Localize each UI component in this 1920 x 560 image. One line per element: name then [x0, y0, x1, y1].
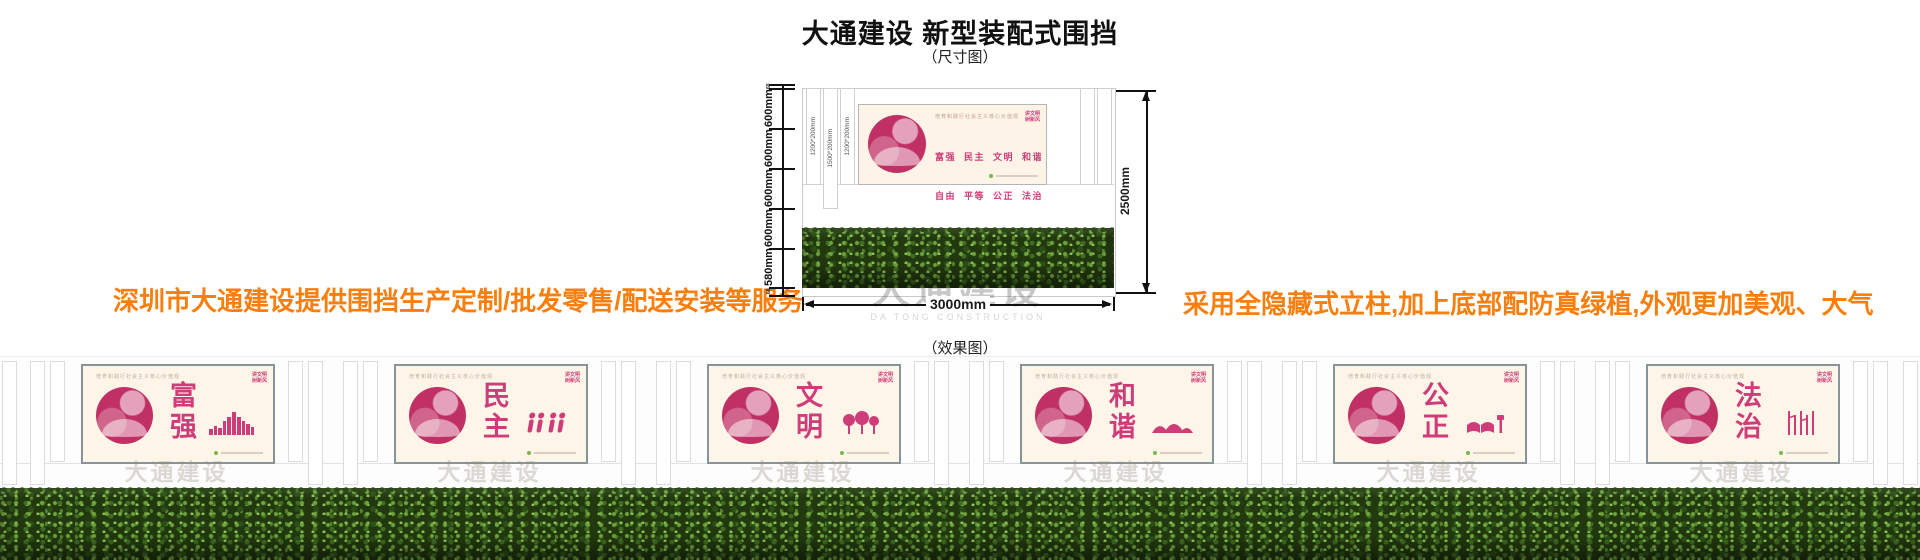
green-dot-icon — [1779, 451, 1783, 455]
poster-header: 培育和践行社会主义核心价值观 — [722, 373, 806, 380]
poster-badge: 讲文明 树新风 — [1504, 372, 1519, 384]
fence-unit: 培育和践行社会主义核心价值观 讲文明 树新风 法治 大通建设 D — [1585, 357, 1898, 489]
green-dot-icon — [989, 174, 993, 178]
footer-line — [1160, 452, 1202, 454]
fence-post — [1853, 361, 1868, 462]
fence-post — [676, 361, 691, 462]
arrow-right-icon — [1102, 300, 1112, 308]
fence-unit: 培育和践行社会主义核心价值观 讲文明 树新风 和谐 大通建设 D — [959, 357, 1272, 489]
poster-badge: 讲文明 树新风 — [565, 372, 580, 384]
fence-unit: 培育和践行社会主义核心价值观 讲文明 树新风 富强 大通建设 D — [20, 357, 333, 489]
feature-tagline: 采用全隐藏式立柱,加上底部配防真绿植,外观更加美观、大气 — [1183, 284, 1873, 321]
papercut-circle-graphic — [1661, 387, 1718, 444]
value-poster: 培育和践行社会主义核心价值观 讲文明 树新风 富强 — [81, 364, 275, 464]
value-word: 法治 — [1732, 381, 1759, 443]
poster-header: 培育和践行社会主义核心价值观 — [96, 373, 180, 380]
fence-post — [1903, 361, 1918, 485]
post-slat: 1500*200mm — [823, 88, 838, 209]
dim-label: 600mm — [758, 208, 780, 248]
fence-post — [1302, 361, 1317, 462]
effect-diagram-label: （效果图） — [0, 337, 1920, 358]
poster-header: 培育和践行社会主义核心价值观 — [935, 113, 1019, 120]
poster-footer-mark — [527, 451, 576, 455]
slat-size-label: 1500*200mm — [827, 129, 834, 168]
dim-label: 600mm — [758, 168, 780, 208]
skyline-icon — [209, 409, 255, 440]
poster-footer-mark — [1153, 451, 1202, 455]
fence-post — [601, 361, 616, 462]
post-slat: 1200*200mm — [840, 88, 855, 185]
trees-icon — [841, 410, 881, 440]
fence-post — [1540, 361, 1555, 462]
dim-label: 600mm — [758, 88, 780, 128]
badge-line: 树新风 — [1025, 117, 1040, 123]
fence-post — [914, 361, 929, 462]
dim-label: 3000mm — [926, 296, 990, 312]
dim-tick — [1116, 90, 1156, 92]
fence-rendering: 培育和践行社会主义核心价值观 讲文明 树新风 富强 大通建设 D — [0, 356, 1920, 489]
value-word: 民主 — [480, 381, 507, 443]
poster-footer-mark — [214, 451, 263, 455]
watermark-en: DA TONG CONSTRUCTION — [818, 313, 1098, 322]
watermark-cn: 大通建设 — [1585, 461, 1898, 484]
poster-header: 培育和践行社会主义核心价值观 — [1348, 373, 1432, 380]
poster-header: 培育和践行社会主义核心价值观 — [1035, 373, 1119, 380]
fence-post — [1227, 361, 1242, 462]
watermark-cn: 大通建设 — [959, 461, 1272, 484]
footer-line — [534, 452, 576, 454]
poster-badge: 讲文明 树新风 — [878, 372, 893, 384]
mountains-icon — [1150, 415, 1194, 440]
book-gavel-icon — [1465, 411, 1507, 440]
dim-tick — [1116, 292, 1156, 294]
hedge-strip — [0, 488, 1920, 560]
badge-line: 树新风 — [878, 378, 893, 384]
papercut-circle-graphic — [1348, 387, 1405, 444]
papercut-circle-graphic — [1035, 387, 1092, 444]
footer-line — [221, 452, 263, 454]
footer-line — [996, 175, 1038, 177]
plants-icon — [1784, 409, 1820, 440]
dim-label: 580mm — [758, 248, 780, 287]
green-dot-icon — [1466, 451, 1470, 455]
dim-chain-line — [782, 84, 784, 295]
poster-badge: 讲文明 树新风 — [252, 372, 267, 384]
badge-line: 树新风 — [1817, 378, 1832, 384]
size-diagram: 大通建设 DA TONG CONSTRUCTION 60 600mm 600mm… — [758, 76, 1188, 336]
watermark-cn: 大通建设 — [333, 461, 646, 484]
value-poster: 培育和践行社会主义核心价值观 讲文明 树新风 公正 — [1333, 364, 1527, 464]
value-poster: 培育和践行社会主义核心价值观 讲文明 树新风 民主 — [394, 364, 588, 464]
poster-footer-mark — [1779, 451, 1828, 455]
arrow-left-icon — [804, 300, 814, 308]
value-word: 和谐 — [1106, 381, 1133, 443]
badge-line: 树新风 — [252, 378, 267, 384]
core-values-poster: 培育和践行社会主义核心价值观 讲文明 树新风 富强 民主 文明 和谐 自由 平等… — [858, 104, 1047, 185]
green-dot-icon — [840, 451, 844, 455]
post-slat — [1080, 88, 1095, 185]
fence-unit: 培育和践行社会主义核心价值观 讲文明 树新风 文明 大通建设 D — [646, 357, 959, 489]
arrow-up-icon — [1142, 91, 1150, 101]
core-values-row: 自由 平等 公正 法治 — [935, 190, 1043, 203]
poster-footer-mark — [840, 451, 889, 455]
fence-post — [50, 361, 65, 462]
slat-size-label: 1200*200mm — [844, 117, 851, 156]
core-values-row: 富强 民主 文明 和谐 — [935, 151, 1043, 164]
badge-line: 树新风 — [565, 378, 580, 384]
arrow-down-icon — [1142, 283, 1150, 293]
watermark-cn: 大通建设 — [20, 461, 333, 484]
papercut-circle-graphic — [868, 115, 926, 173]
footer-line — [1786, 452, 1828, 454]
papercut-circle-graphic — [409, 387, 466, 444]
poster-header: 培育和践行社会主义核心价值观 — [409, 373, 493, 380]
poster-footer-mark — [989, 174, 1038, 178]
dim-tick — [769, 295, 795, 297]
people-icon — [526, 411, 568, 440]
value-poster: 培育和践行社会主义核心价值观 讲文明 树新风 文明 — [707, 364, 901, 464]
dim-label: 2500mm — [1114, 138, 1136, 244]
footer-line — [1473, 452, 1515, 454]
fence-post — [363, 361, 378, 462]
hedge-strip — [802, 228, 1114, 288]
poster-badge: 讲文明 树新风 — [1817, 372, 1832, 384]
dim-label: 600mm — [758, 128, 780, 168]
papercut-circle-graphic — [722, 387, 779, 444]
value-poster: 培育和践行社会主义核心价值观 讲文明 树新风 法治 — [1646, 364, 1840, 464]
poster-badge: 讲文明 树新风 — [1025, 111, 1040, 123]
slat-size-label: 1200*200mm — [810, 117, 817, 156]
value-poster: 培育和践行社会主义核心价值观 讲文明 树新风 和谐 — [1020, 364, 1214, 464]
value-word: 文明 — [793, 381, 820, 443]
fence-post — [1615, 361, 1630, 462]
fence-post — [288, 361, 303, 462]
fence-unit: 培育和践行社会主义核心价值观 讲文明 树新风 民主 大通建设 D — [333, 357, 646, 489]
post-slat: 1200*200mm — [806, 88, 821, 185]
post-slat — [1097, 88, 1112, 185]
poster-badge: 讲文明 树新风 — [1191, 372, 1206, 384]
promo-sheet: 大通建设 新型装配式围挡 （尺寸图） 深圳市大通建设提供围挡生产定制/批发零售/… — [0, 0, 1920, 560]
green-dot-icon — [214, 451, 218, 455]
service-tagline: 深圳市大通建设提供围挡生产定制/批发零售/配送安装等服务 — [113, 281, 803, 318]
size-diagram-label: （尺寸图） — [0, 46, 1920, 67]
poster-footer-mark — [1466, 451, 1515, 455]
poster-header: 培育和践行社会主义核心价值观 — [1661, 373, 1745, 380]
dim-tick — [1113, 297, 1115, 311]
badge-line: 树新风 — [1191, 378, 1206, 384]
watermark-cn: 大通建设 — [646, 461, 959, 484]
papercut-circle-graphic — [96, 387, 153, 444]
watermark-cn: 大通建设 — [1272, 461, 1585, 484]
footer-line — [847, 452, 889, 454]
dim-label: 60 — [758, 287, 780, 295]
green-dot-icon — [527, 451, 531, 455]
value-word: 富强 — [167, 381, 194, 443]
fence-post — [989, 361, 1004, 462]
green-dot-icon — [1153, 451, 1157, 455]
fence-unit: 培育和践行社会主义核心价值观 讲文明 树新风 公正 大通建设 D — [1272, 357, 1585, 489]
fence-post — [2, 361, 17, 485]
value-word: 公正 — [1419, 381, 1446, 443]
badge-line: 树新风 — [1504, 378, 1519, 384]
dim-line-vertical — [1146, 92, 1148, 292]
